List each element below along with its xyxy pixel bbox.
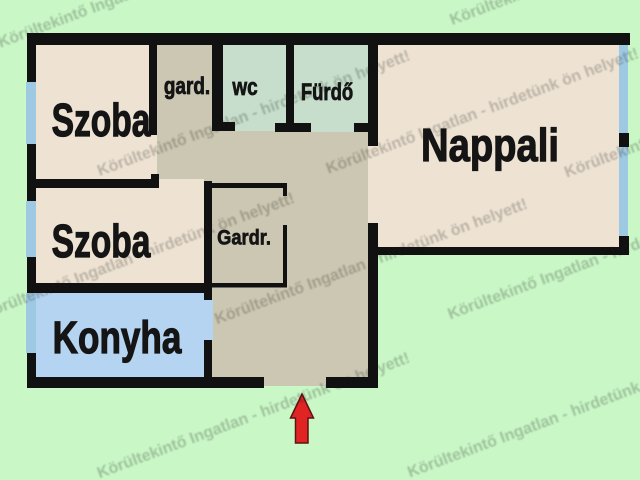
svg-text:Konyha: Konyha <box>53 312 182 363</box>
svg-text:Szoba: Szoba <box>52 95 151 146</box>
svg-text:wc: wc <box>231 73 257 101</box>
svg-text:gard.: gard. <box>164 72 210 100</box>
